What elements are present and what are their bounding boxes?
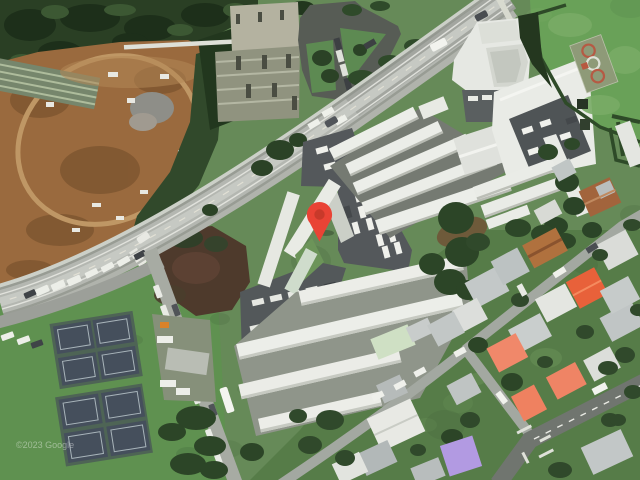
svg-text:©2023 Google: ©2023 Google <box>16 440 74 450</box>
